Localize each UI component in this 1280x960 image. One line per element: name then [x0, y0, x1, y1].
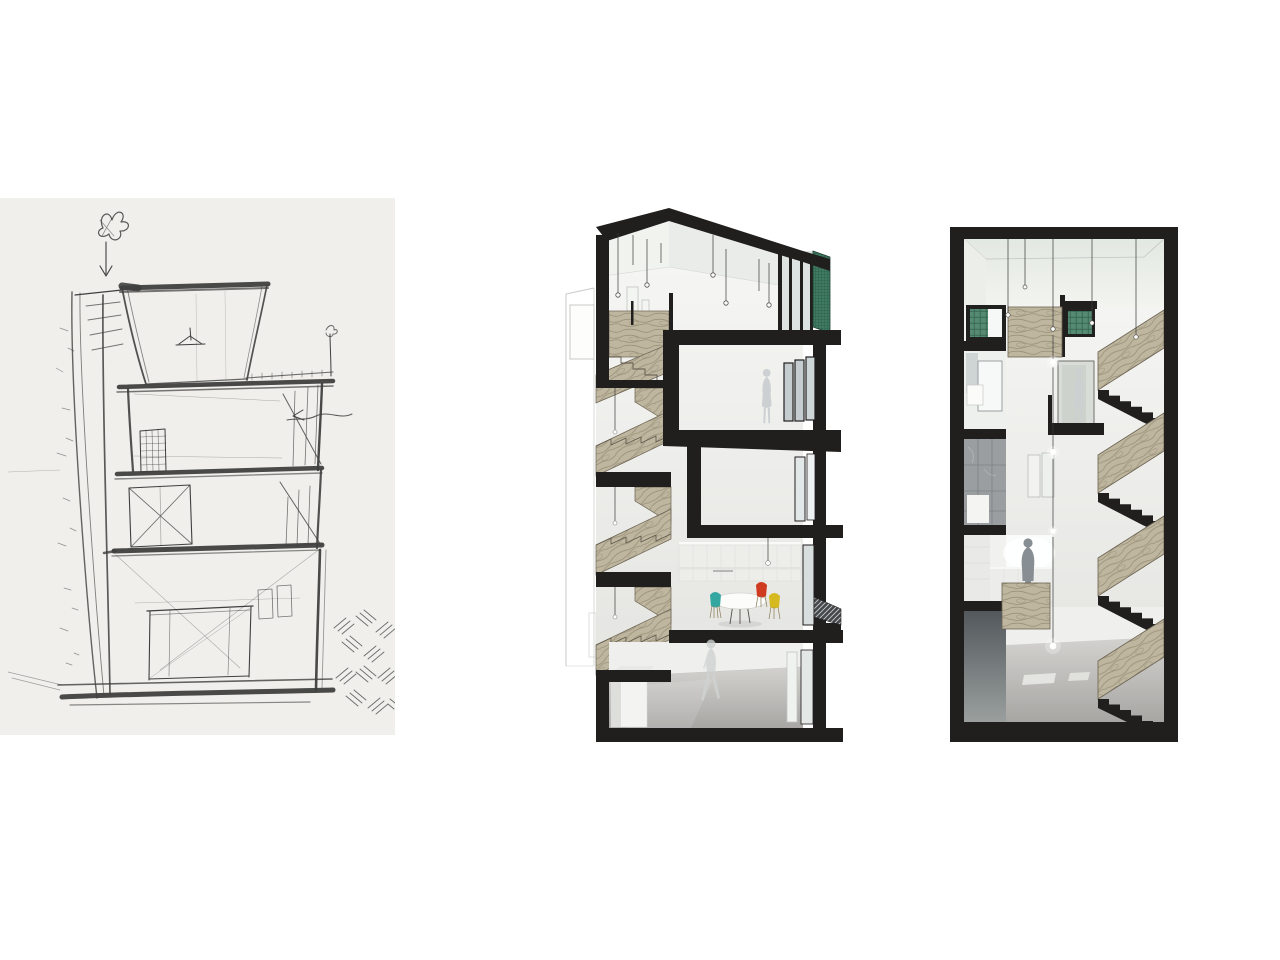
landing-parapet-a — [1008, 307, 1062, 357]
section-cutaway-panel — [563, 205, 853, 745]
neighbor-building-outline — [566, 288, 596, 666]
cutaway-svg — [563, 205, 853, 745]
stair-core-panel — [950, 227, 1178, 742]
kitchen — [679, 542, 801, 581]
dark-store-room — [964, 611, 1006, 723]
sketch-paper — [0, 198, 395, 735]
marble-shower-room — [964, 439, 1006, 525]
sketch-svg — [0, 198, 395, 735]
presentation-board — [0, 0, 1280, 960]
bathroom — [964, 351, 1006, 429]
landing-parapet-c — [1002, 583, 1050, 629]
stairwell-svg — [950, 227, 1178, 742]
concept-sketch-panel — [0, 198, 395, 735]
